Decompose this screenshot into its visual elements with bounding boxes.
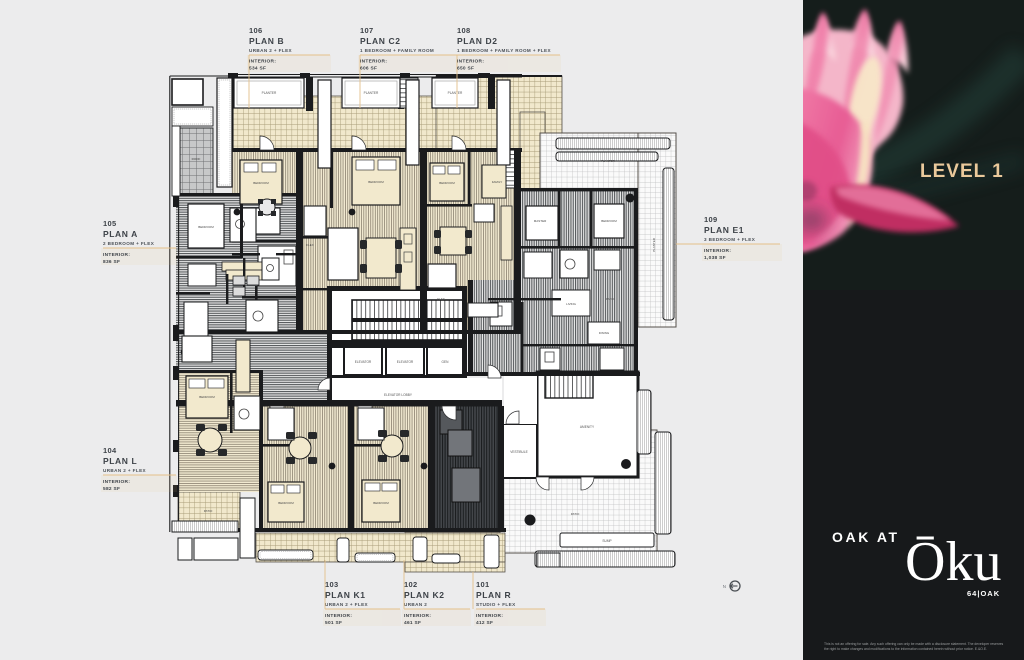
svg-text:INTERIOR:: INTERIOR: — [404, 613, 431, 619]
svg-text:INTERIOR:: INTERIOR: — [325, 613, 352, 619]
svg-text:PLAN K1: PLAN K1 — [325, 590, 366, 600]
svg-text:PLAN E1: PLAN E1 — [704, 225, 744, 235]
svg-text:PATIO: PATIO — [204, 509, 213, 513]
svg-text:URBAN 2 + FLEX: URBAN 2 + FLEX — [103, 468, 147, 473]
svg-text:1 BEDROOM + FAMILY ROOM: 1 BEDROOM + FAMILY ROOM — [360, 48, 434, 53]
svg-text:606 SF: 606 SF — [360, 66, 377, 72]
svg-text:PATIO: PATIO — [606, 297, 615, 301]
svg-text:836 SF: 836 SF — [103, 259, 120, 265]
svg-text:URBAN 2: URBAN 2 — [404, 602, 427, 607]
svg-text:108: 108 — [457, 26, 470, 35]
svg-text:the right to make changes and: the right to make changes and modificati… — [824, 647, 987, 651]
svg-text:PLAN R: PLAN R — [476, 590, 511, 600]
svg-text:ELEVATOR LOBBY: ELEVATOR LOBBY — [384, 393, 413, 397]
svg-text:105: 105 — [103, 219, 116, 228]
svg-text:PLAN C2: PLAN C2 — [360, 36, 401, 46]
svg-text:3 BEDROOM + FLEX: 3 BEDROOM + FLEX — [704, 237, 756, 242]
svg-text:BEDROOM: BEDROOM — [368, 180, 384, 184]
svg-text:PLAN K2: PLAN K2 — [404, 590, 445, 600]
svg-text:FLEX: FLEX — [306, 243, 314, 247]
svg-text:LIVING: LIVING — [566, 302, 577, 306]
svg-text:AMENITY: AMENITY — [580, 425, 595, 429]
svg-text:103: 103 — [325, 580, 338, 589]
svg-text:INTERIOR:: INTERIOR: — [103, 479, 130, 485]
svg-text:VESTIBULE: VESTIBULE — [510, 450, 528, 454]
svg-text:STUDIO + FLEX: STUDIO + FLEX — [476, 602, 516, 607]
svg-text:INTERIOR:: INTERIOR: — [476, 613, 503, 619]
svg-text:URBAN 2 + FLEX: URBAN 2 + FLEX — [325, 602, 369, 607]
svg-text:BEDROOM: BEDROOM — [278, 501, 294, 505]
svg-text:BEDROOM: BEDROOM — [373, 501, 389, 505]
svg-text:INTERIOR:: INTERIOR: — [103, 252, 130, 258]
svg-text:Ōku: Ōku — [905, 531, 1001, 593]
svg-text:BEDROOM: BEDROOM — [198, 225, 214, 229]
svg-text:SUMP: SUMP — [602, 539, 611, 543]
svg-text:BEDROOM: BEDROOM — [439, 181, 455, 185]
svg-text:INTERIOR:: INTERIOR: — [249, 59, 276, 65]
svg-text:PLANTER: PLANTER — [364, 91, 379, 95]
svg-text:GEN: GEN — [442, 360, 450, 364]
svg-text:PLANTER: PLANTER — [448, 91, 463, 95]
svg-text:PATIO: PATIO — [571, 512, 580, 516]
svg-text:FAMILY: FAMILY — [492, 180, 502, 184]
svg-text:PLAN A: PLAN A — [103, 229, 138, 239]
svg-text:FLEX: FLEX — [437, 297, 445, 301]
svg-text:BEDROOM: BEDROOM — [199, 395, 215, 399]
svg-text:501 SF: 501 SF — [325, 620, 342, 626]
svg-text:DINING: DINING — [599, 331, 610, 335]
svg-text:104: 104 — [103, 446, 117, 455]
svg-text:1,038 SF: 1,038 SF — [704, 255, 726, 261]
svg-text:PLANTER: PLANTER — [652, 237, 656, 252]
svg-text:582 SF: 582 SF — [103, 486, 120, 492]
svg-text:PLAN L: PLAN L — [103, 456, 137, 466]
svg-text:107: 107 — [360, 26, 373, 35]
svg-text:PLAN D2: PLAN D2 — [457, 36, 498, 46]
svg-text:INTERIOR:: INTERIOR: — [457, 59, 484, 65]
svg-text:ELEVATOR: ELEVATOR — [355, 360, 372, 364]
svg-text:ROOF: ROOF — [192, 157, 201, 161]
svg-text:PLAN B: PLAN B — [249, 36, 284, 46]
svg-text:534 SF: 534 SF — [249, 66, 266, 72]
svg-text:PLANTER: PLANTER — [262, 91, 277, 95]
svg-text:INTERIOR:: INTERIOR: — [360, 59, 387, 65]
svg-text:106: 106 — [249, 26, 262, 35]
svg-text:2 BEDROOM + FLEX: 2 BEDROOM + FLEX — [103, 241, 155, 246]
svg-text:BEDROOM: BEDROOM — [601, 219, 617, 223]
svg-text:461 SF: 461 SF — [404, 620, 421, 626]
svg-text:ELEVATOR: ELEVATOR — [397, 360, 414, 364]
svg-text:64|OAK: 64|OAK — [967, 589, 1000, 598]
svg-text:412 SF: 412 SF — [476, 620, 493, 626]
svg-text:109: 109 — [704, 215, 717, 224]
svg-text:MASTER: MASTER — [534, 219, 547, 223]
svg-text:102: 102 — [404, 580, 417, 589]
svg-text:URBAN 2 + FLEX: URBAN 2 + FLEX — [249, 48, 293, 53]
svg-text:N: N — [723, 584, 726, 589]
svg-text:PLANTER: PLANTER — [601, 159, 616, 163]
svg-text:LEVEL 1: LEVEL 1 — [920, 161, 1004, 182]
svg-text:101: 101 — [476, 580, 489, 589]
svg-text:OAK AT: OAK AT — [832, 529, 900, 545]
svg-text:INTERIOR:: INTERIOR: — [704, 248, 731, 254]
svg-text:650 SF: 650 SF — [457, 66, 474, 72]
svg-text:BEDROOM: BEDROOM — [253, 181, 269, 185]
svg-text:1 BEDROOM + FAMILY ROOM + FLEX: 1 BEDROOM + FAMILY ROOM + FLEX — [457, 48, 551, 53]
svg-text:This is not an offering for sa: This is not an offering for sale. Any su… — [824, 642, 1004, 646]
